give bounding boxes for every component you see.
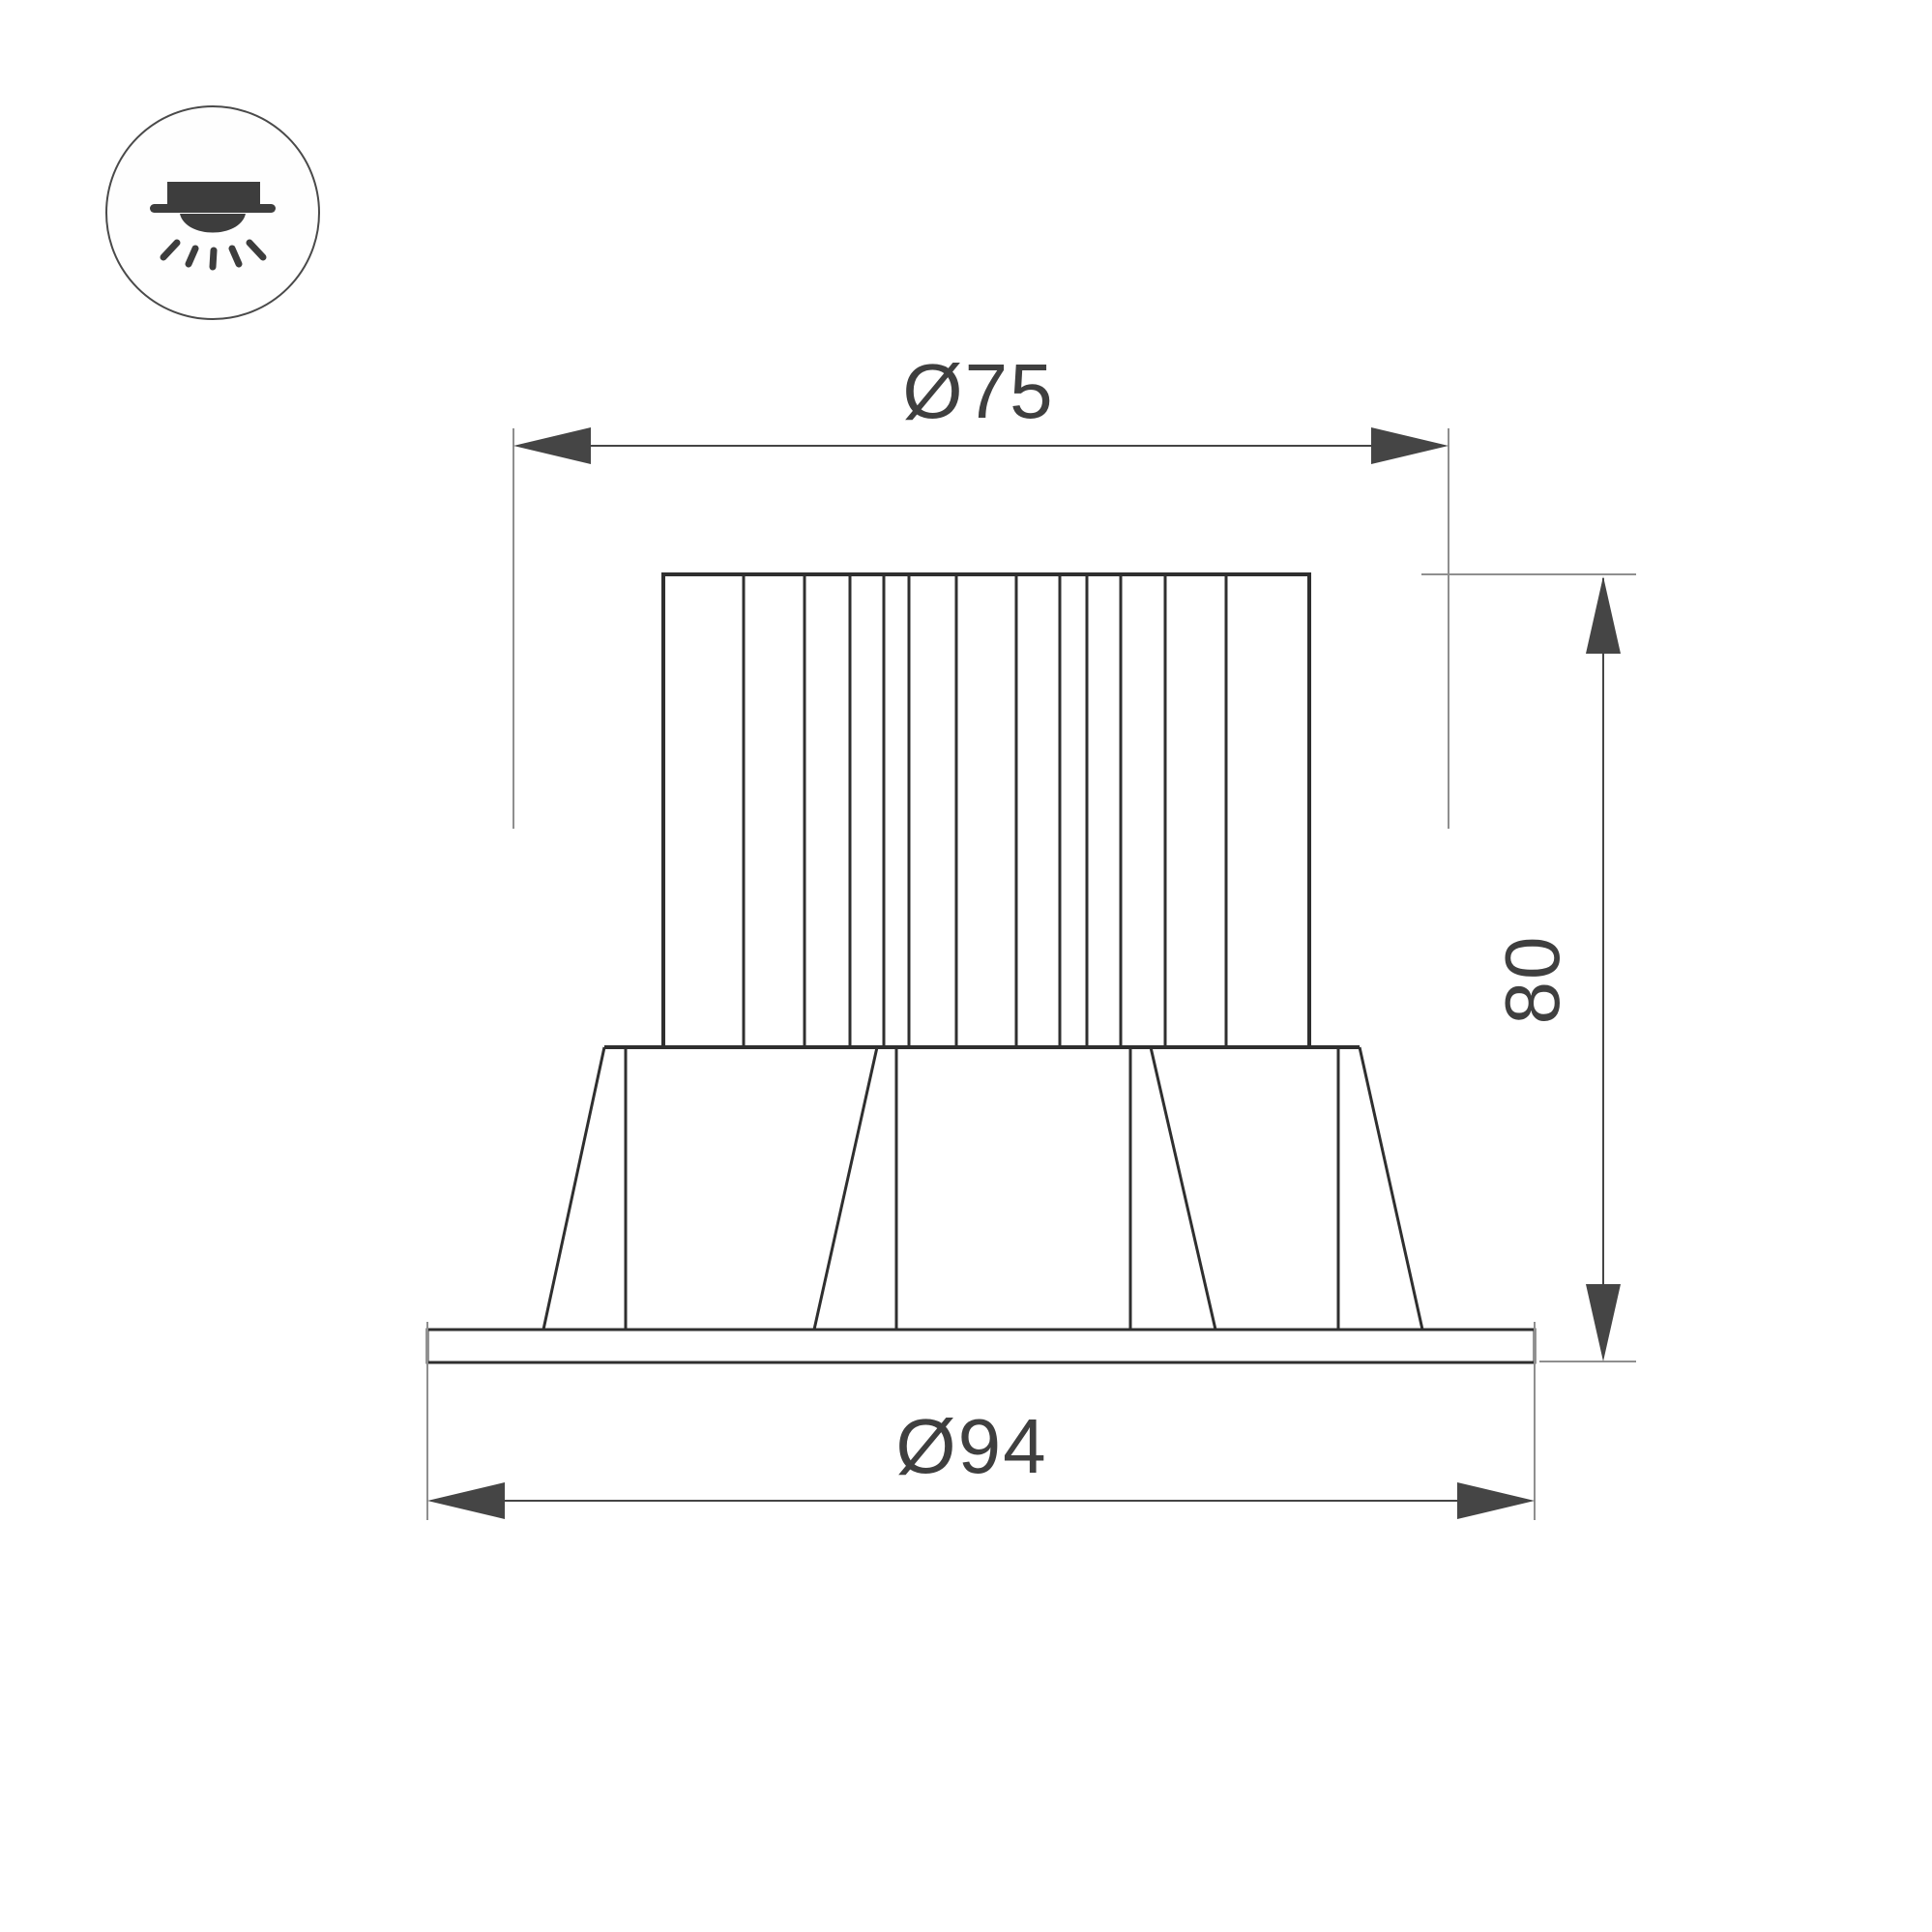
arrow-left — [513, 427, 591, 464]
arrow-right — [1371, 427, 1449, 464]
cone-clip-slant-line — [814, 1047, 877, 1330]
dimension-bottom-diameter: Ø94 — [427, 1322, 1535, 1520]
light-ray-icon — [213, 250, 214, 267]
arrow-up — [1586, 576, 1621, 654]
mounting-type-badge — [106, 106, 319, 319]
ceiling-line — [150, 204, 276, 213]
heatsink-body — [663, 574, 1309, 1047]
arrow-left — [427, 1482, 505, 1519]
flange-outline — [427, 1330, 1535, 1362]
housing-cone — [543, 1047, 1422, 1330]
downlight-technical-drawing: Ø75 80 Ø94 — [0, 0, 1932, 1932]
dimension-label-bottom-diameter: Ø94 — [895, 1403, 1047, 1489]
cone-left-outer-edge — [543, 1047, 604, 1330]
arrow-down — [1586, 1284, 1621, 1361]
dimension-label-top-diameter: Ø75 — [902, 348, 1054, 434]
heatsink-outline — [663, 574, 1309, 1047]
cone-right-outer-edge — [1360, 1047, 1422, 1330]
arrow-right — [1457, 1482, 1535, 1519]
cone-clip-slant-line — [1151, 1047, 1215, 1330]
dimension-height: 80 — [1421, 574, 1636, 1361]
mounting-flange — [427, 1330, 1535, 1362]
dimension-label-height: 80 — [1489, 935, 1575, 1025]
technical-drawing-page: Ø75 80 Ø94 — [0, 0, 1932, 1932]
